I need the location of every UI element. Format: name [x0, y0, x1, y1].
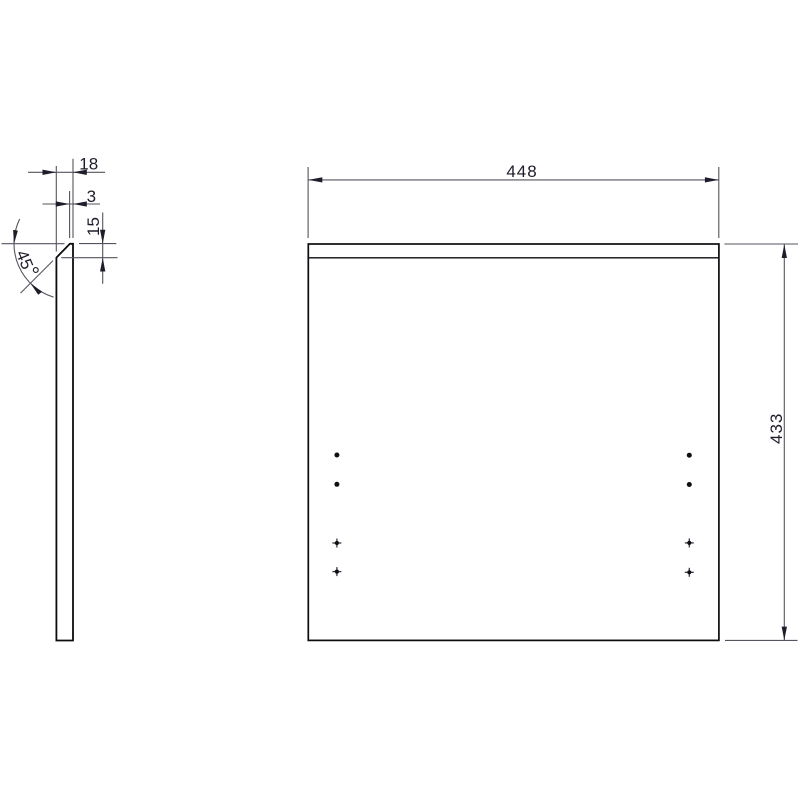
- svg-text:448: 448: [506, 162, 537, 181]
- svg-text:15: 15: [84, 217, 103, 236]
- svg-text:433: 433: [767, 413, 786, 444]
- svg-text:18: 18: [79, 155, 98, 174]
- svg-text:3: 3: [87, 187, 96, 206]
